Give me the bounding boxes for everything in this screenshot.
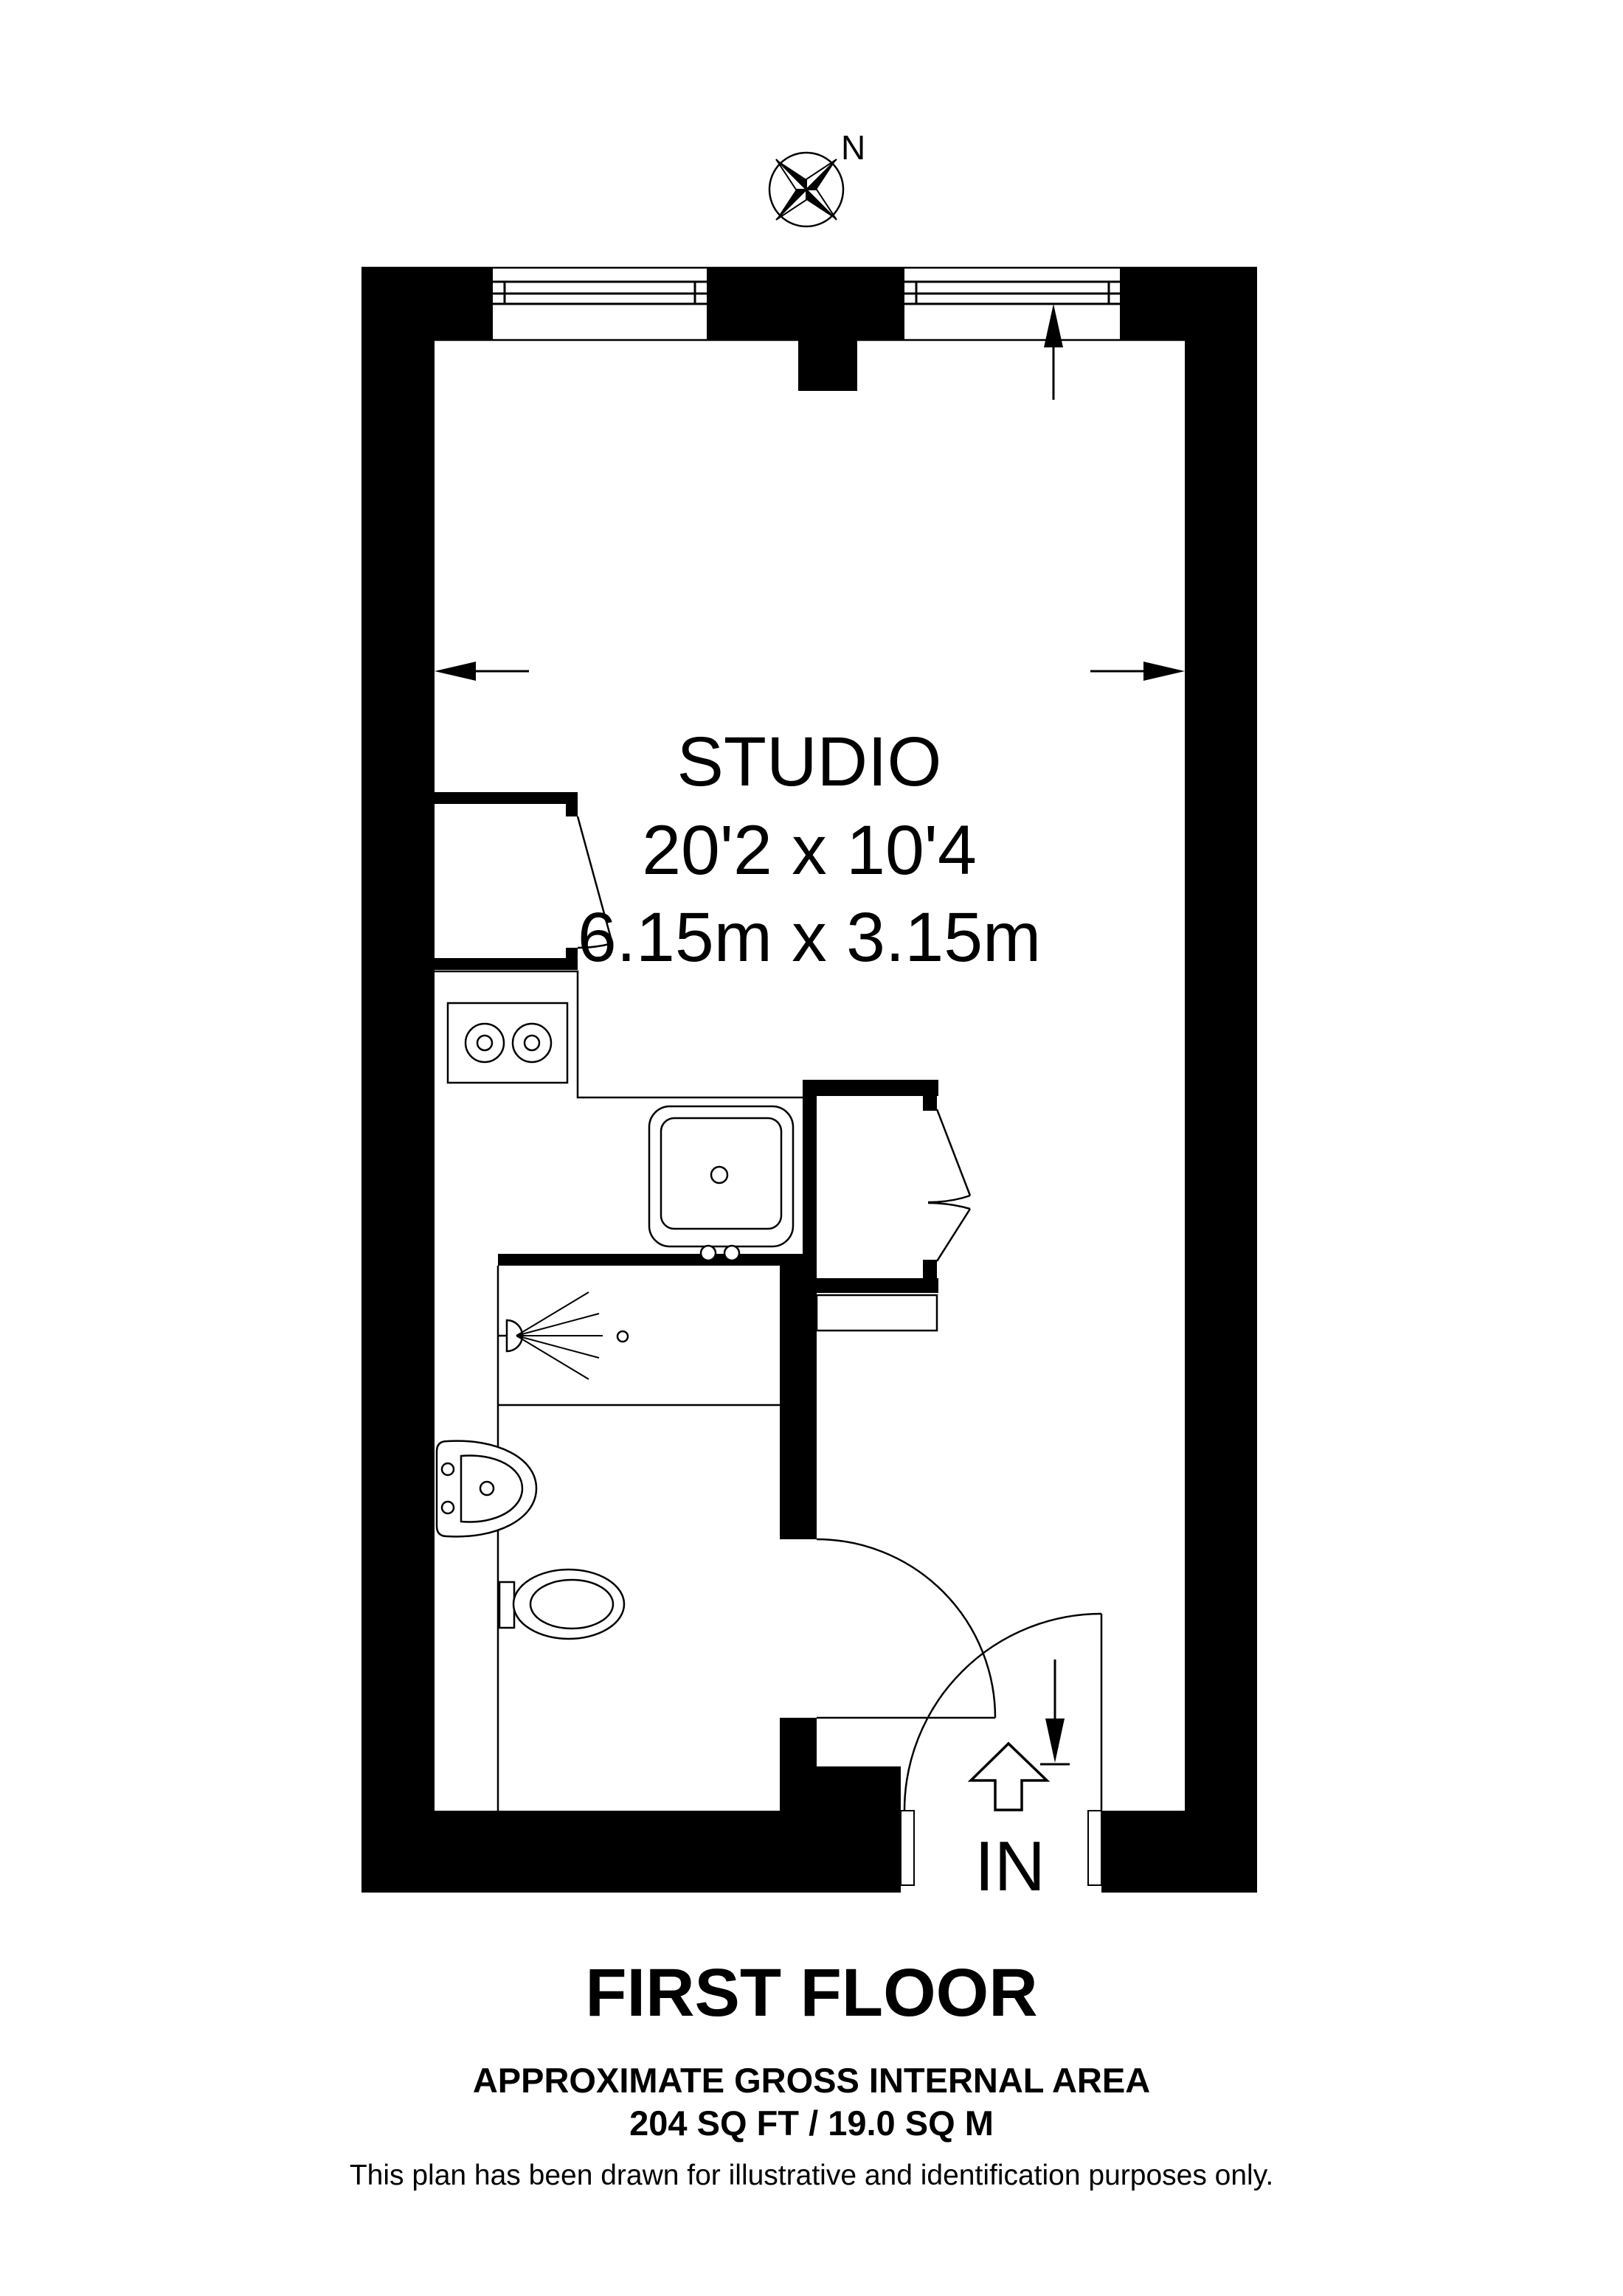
sink-tap-left [701, 1246, 716, 1260]
toilet-bowl-inner [530, 1580, 613, 1629]
cupboard-jamb-top [923, 1096, 937, 1111]
basin-tap-top [442, 1463, 454, 1475]
entrance-step-block [780, 1766, 901, 1812]
shower [498, 1292, 628, 1379]
area-value: 204 SQ FT / 19.0 SQ M [629, 2103, 994, 2143]
burner-left-center [477, 1036, 492, 1050]
shower-drain [617, 1331, 628, 1342]
area-title: APPROXIMATE GROSS INTERNAL AREA [473, 2061, 1150, 2100]
bathroom-wall-top [498, 1254, 817, 1266]
north-label: N [841, 128, 865, 167]
floor-title: FIRST FLOOR [585, 1955, 1037, 2030]
cupboard-door-arc-bottom [928, 1203, 970, 1209]
closet-wall-bottom [435, 958, 578, 970]
bathroom-wall-right [780, 1254, 817, 1539]
compass-icon: N [769, 128, 865, 226]
toilet [499, 1570, 624, 1639]
cupboard-door-arc-top [928, 1196, 970, 1202]
wall-bottom-left [361, 1811, 901, 1893]
disclaimer-text: This plan has been drawn for illustrativ… [350, 2160, 1273, 2191]
wall-bottom-right [1101, 1811, 1257, 1893]
cupboard-lower-strip [817, 1295, 937, 1331]
room-dims-metric: 6.15m x 3.15m [578, 898, 1041, 977]
burner-right-center [525, 1036, 539, 1050]
closet-jamb-bottom [566, 948, 578, 958]
sink-tap-right [724, 1246, 739, 1260]
wall-left [361, 268, 435, 1893]
wash-basin [437, 1441, 536, 1537]
wall-top-left-corner [361, 268, 493, 340]
closet-jamb-top [566, 804, 578, 816]
floorplan-page: N [0, 0, 1623, 2296]
bathroom-wall-right-stub [780, 1718, 817, 1769]
basin-drain [480, 1482, 494, 1495]
threshold-right [1088, 1811, 1101, 1885]
wall-pier-tab [798, 340, 857, 391]
bathroom-lines [498, 1266, 780, 1811]
cupboard-doors [817, 1109, 970, 1331]
floor-plan-svg: N [0, 0, 1623, 2296]
cupboard-wall-bottom [803, 1278, 938, 1293]
dim-arrow-left [435, 662, 529, 681]
dim-arrow-bottom [1040, 1659, 1070, 1764]
toilet-cistern [499, 1582, 514, 1628]
sink-drain [711, 1167, 727, 1183]
cupboard-door-bottom-leaf [937, 1209, 970, 1261]
kitchen-sink [649, 1106, 793, 1260]
dim-arrow-top [1044, 304, 1063, 400]
in-label: IN [975, 1827, 1045, 1906]
room-dims-imperial: 20'2 x 10'4 [642, 811, 977, 889]
hob [448, 1003, 567, 1083]
window-right [904, 282, 1120, 304]
wall-top-pier [707, 268, 904, 340]
cupboard-wall-top [803, 1080, 938, 1096]
cupboard-jamb-bottom [923, 1260, 937, 1278]
bathroom-door [817, 1539, 995, 1718]
shower-spray [516, 1292, 603, 1379]
wall-right [1185, 268, 1257, 1893]
room-name-label: STUDIO [677, 723, 942, 801]
threshold-left [901, 1811, 914, 1885]
in-arrow-icon [971, 1744, 1047, 1810]
window-left [493, 282, 707, 304]
dim-arrow-right [1090, 662, 1185, 681]
cupboard-door-top-leaf [937, 1109, 970, 1196]
closet-wall-top [435, 792, 578, 804]
basin-tap-bottom [442, 1502, 454, 1513]
